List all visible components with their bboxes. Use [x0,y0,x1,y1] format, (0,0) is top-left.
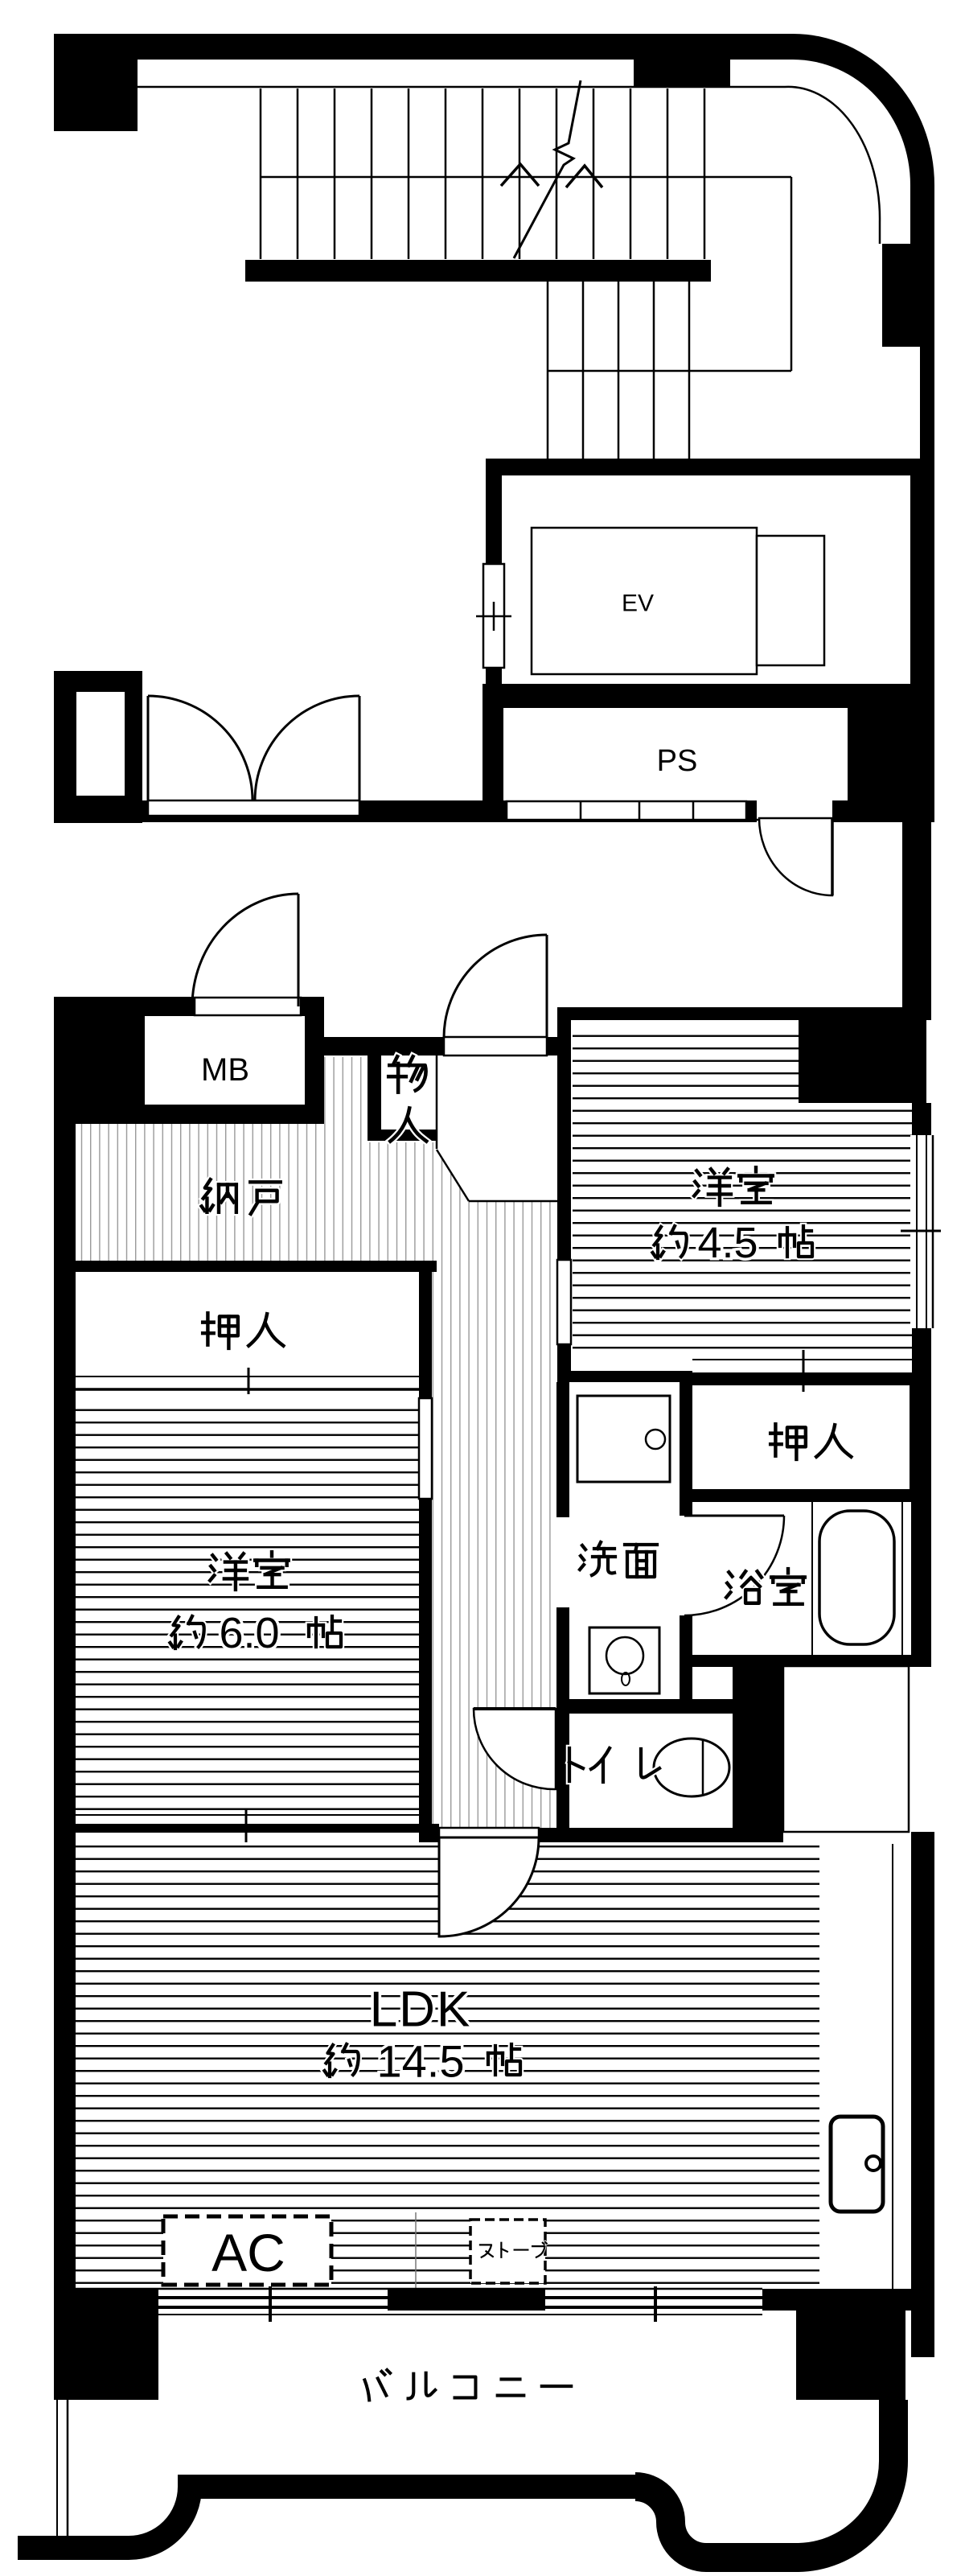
svg-text:4.5: 4.5 [697,1219,758,1267]
svg-text:EV: EV [622,591,654,617]
svg-text:6.0: 6.0 [219,1609,279,1657]
svg-text:LDK: LDK [370,1982,472,2038]
svg-text:AC: AC [211,2223,285,2282]
svg-text:MB: MB [201,1052,249,1088]
svg-text:14.5: 14.5 [377,2036,465,2087]
svg-text:PS: PS [657,744,698,778]
